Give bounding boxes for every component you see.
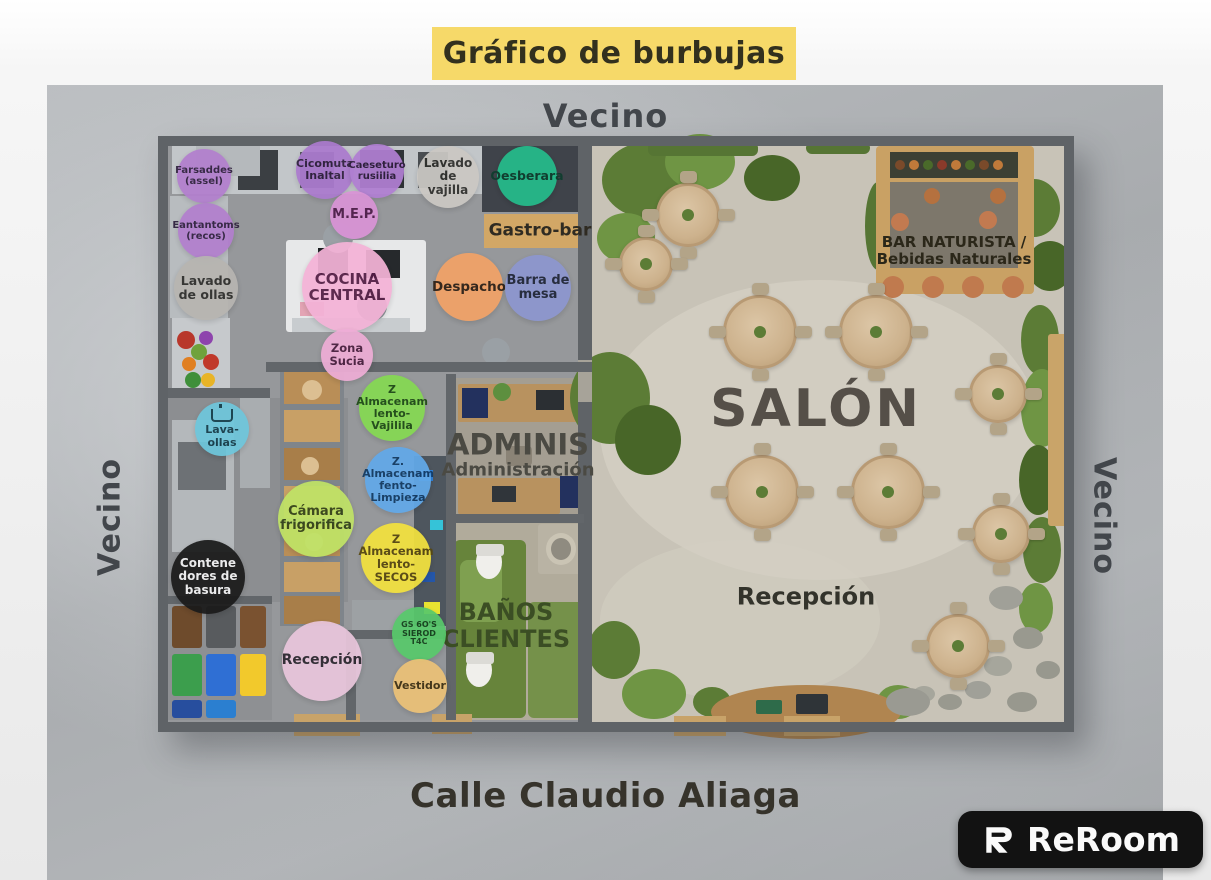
bubble-label-line: Barra de [507, 274, 570, 288]
bubble-despacho: Despacho [435, 253, 503, 321]
bubble-label-line: Lavado [181, 274, 232, 288]
bubble-label-line: Vajilila [371, 420, 413, 432]
bubble-label-line: Recepción [282, 653, 363, 668]
bubble-label-line: Inaltal [305, 170, 345, 182]
bubble-label-line: (recos) [186, 231, 226, 242]
bubble-lavado-vajilla: Lavado devajilla [417, 146, 479, 208]
bubble-recepcion: Recepción [282, 621, 362, 701]
bubble-diagram-canvas: Gastro-barADMINISAdministraciónBAÑOSCLIE… [0, 0, 1211, 880]
bubble-gs: GS 6O'SSIERODT4C [392, 607, 446, 661]
bubble-label-line: Eantantoms [172, 220, 239, 231]
bubble-label-line: COCINA [315, 271, 380, 288]
bubble-camara: Cámarafrigorifica [278, 481, 354, 557]
bubble-caeseturo: Caeseturorusiilia [350, 144, 404, 198]
bubble-label-line: Sucia [330, 355, 365, 368]
bubble-label-line: (assel) [185, 176, 223, 187]
bubble-label-line: mesa [519, 288, 558, 302]
reroom-logo: ReRoom [958, 811, 1203, 868]
bubble-label-line: T4C [411, 638, 428, 647]
bubble-label-line: basura [185, 584, 231, 597]
bubble-eantantoms: Eantantoms(recos) [178, 203, 234, 259]
bubble-label-line: Lava-ollas [195, 424, 249, 448]
neighbor-label-left: Vecino [93, 458, 128, 576]
bubble-contenedores: Contenedores debasura [171, 540, 245, 614]
bubble-label-line: de ollas [179, 288, 234, 302]
bubble-z-limpieza: Z.Almacenamfento-Limpieza [365, 447, 431, 513]
bubble-label-line: Cámara [288, 505, 344, 519]
bubble-vestidor: Vestidor [393, 659, 447, 713]
sink-icon [211, 409, 233, 422]
bubble-label-line: Lavado de [417, 157, 479, 183]
bubble-mep: M.E.P. [330, 191, 378, 239]
bubble-lava-ollas: Lava-ollas [195, 402, 249, 456]
bubble-cocina-central: COCINACENTRAL [302, 242, 392, 332]
bubble-label-line: lento- [377, 558, 415, 571]
bubble-cicomuta: CicomutaInaltal [296, 141, 354, 199]
bubble-lavado-ollas: Lavadode ollas [174, 256, 238, 320]
bubble-label-line: Oesberara [490, 169, 563, 183]
bubble-label-line: CENTRAL [309, 287, 386, 304]
bubble-label-line: vajilla [428, 184, 468, 197]
reroom-wordmark: ReRoom [1027, 820, 1180, 859]
bubble-label-line: Despacho [432, 280, 506, 295]
bubble-z-secos: ZAlmacenamlento-SECOS [361, 523, 431, 593]
bubble-label-line: Limpieza [370, 492, 425, 504]
bubble-label-line: dores de [179, 570, 238, 583]
bubble-z-vajilla: ZAlmacenamlento-Vajilila [359, 375, 425, 441]
bubble-oesberara: Oesberara [497, 146, 557, 206]
bubble-zona-sucia: ZonaSucia [321, 329, 373, 381]
bubble-label-line: M.E.P. [332, 208, 376, 222]
bubble-label-line: SECOS [375, 571, 418, 584]
bubble-label-line: Vestidor [394, 680, 446, 692]
bubble-label-line: rusiilia [358, 171, 396, 182]
neighbor-label-right: Vecino [1087, 457, 1122, 575]
bubble-label-line: Caeseturo [348, 160, 405, 171]
street-label: Calle Claudio Aliaga [0, 776, 1211, 816]
bubble-farsaddes: Farsaddes(assel) [177, 149, 231, 203]
diagram-title-text: Gráfico de burbujas [443, 36, 785, 71]
bubble-label-line: frigorifica [280, 519, 352, 533]
neighbor-label-top: Vecino [0, 97, 1211, 135]
bubble-label-line: Farsaddes [175, 165, 233, 176]
diagram-title: Gráfico de burbujas [432, 27, 796, 80]
bubble-barra-mesa: Barra demesa [505, 255, 571, 321]
reroom-r-icon [981, 823, 1015, 857]
